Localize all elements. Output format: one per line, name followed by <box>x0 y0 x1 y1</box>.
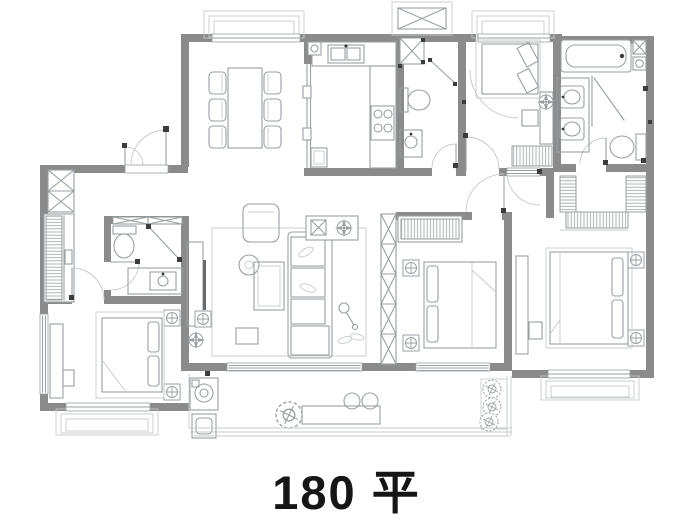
wall-unit-symbol <box>195 311 211 327</box>
door-bedroom-middle <box>466 174 506 213</box>
chair <box>209 99 226 121</box>
stool-round <box>344 393 360 409</box>
balcony <box>189 371 512 438</box>
ensuite-bathroom <box>113 224 182 294</box>
stool <box>63 370 74 386</box>
window-left-wall <box>40 314 48 394</box>
bed <box>424 262 496 348</box>
potted-plant <box>276 402 302 428</box>
chair <box>209 72 226 94</box>
potted-plant <box>483 380 501 398</box>
chair <box>264 99 281 121</box>
stool <box>522 110 538 126</box>
washer-cabinet <box>400 38 425 64</box>
window-bedroom-middle <box>416 363 490 371</box>
pillow <box>427 266 438 302</box>
pillow <box>517 68 538 93</box>
bed <box>546 248 632 348</box>
shafts-and-closets <box>44 146 646 364</box>
round-side-table <box>239 255 259 275</box>
area-caption: 180 平 <box>0 454 693 523</box>
stool <box>529 322 542 339</box>
entry-door-sill <box>125 165 168 173</box>
nightstand <box>164 310 180 326</box>
dining-table <box>228 68 262 148</box>
desk <box>50 324 63 398</box>
nightstand <box>164 384 180 400</box>
duct-shaft-living <box>381 214 396 364</box>
bedroom-bottom-left <box>50 310 180 400</box>
bed <box>482 44 538 94</box>
compass-symbol <box>187 331 205 349</box>
armchair <box>243 204 279 242</box>
wardrobe-bedroom-tr <box>512 146 552 166</box>
nightstand <box>403 335 419 351</box>
duct-shaft-entry <box>48 170 74 212</box>
stool-round <box>362 393 378 409</box>
chair <box>264 126 281 148</box>
kitchen-sink <box>328 44 364 63</box>
pillow <box>148 356 159 386</box>
entry-door <box>122 126 169 165</box>
chaise <box>291 326 329 355</box>
pillow <box>517 42 538 67</box>
bed <box>96 312 164 398</box>
dining-bay-window <box>204 11 304 42</box>
pillow <box>427 306 438 342</box>
chair <box>209 126 226 148</box>
guest-bathroom <box>400 38 457 157</box>
bath-hall-top-cabinet <box>113 217 182 224</box>
shower-corner <box>428 58 457 86</box>
shower-corner <box>146 224 182 262</box>
balcony-slider-living <box>227 363 362 371</box>
bedroom-right <box>516 248 644 354</box>
rug <box>212 228 366 356</box>
floor-lamp <box>339 303 358 330</box>
nightstand <box>403 260 419 276</box>
nightstand <box>628 330 644 346</box>
sofa <box>288 232 364 358</box>
floor-plan-page: 180 平 <box>0 0 693 525</box>
vanity-sink <box>128 268 182 294</box>
nightstand <box>628 252 644 268</box>
bedroom-right-bay-window <box>541 370 639 400</box>
master-bathroom <box>557 40 648 163</box>
pillow <box>612 300 623 338</box>
pillow <box>148 322 159 352</box>
floor-plan-svg <box>0 0 693 460</box>
bedroom-tr-bay-window <box>472 11 554 42</box>
laundry-sink <box>192 414 216 438</box>
duct-box-top <box>392 2 452 35</box>
closet-hall <box>44 214 74 302</box>
hall-pass-opening <box>507 168 540 176</box>
door-bedroom-tr <box>463 133 499 170</box>
bathtub <box>561 40 631 72</box>
shower <box>592 76 648 126</box>
dining-room <box>209 68 281 148</box>
gas-stove <box>371 106 394 140</box>
double-vanity <box>557 78 589 152</box>
toilet <box>113 226 136 258</box>
bedroom-bl-bay-window <box>56 403 158 435</box>
wardrobe-bedroom-middle <box>398 216 462 242</box>
balcony-railing <box>189 374 512 436</box>
equipment-box <box>306 216 358 240</box>
glass-partition <box>307 64 311 168</box>
walkin-closet <box>560 176 646 230</box>
door-bath-hall <box>111 259 140 290</box>
chair <box>264 72 281 94</box>
bedroom-top-right <box>470 40 555 144</box>
side-stool <box>236 328 258 344</box>
toilet <box>610 134 646 163</box>
living-room <box>187 204 366 358</box>
desk <box>516 256 528 354</box>
door-bath-kitchen <box>432 144 458 168</box>
bedroom-middle <box>403 260 496 351</box>
pillow <box>612 258 623 296</box>
toilet <box>400 88 430 112</box>
washing-machine <box>190 371 218 410</box>
kitchen <box>303 42 396 168</box>
